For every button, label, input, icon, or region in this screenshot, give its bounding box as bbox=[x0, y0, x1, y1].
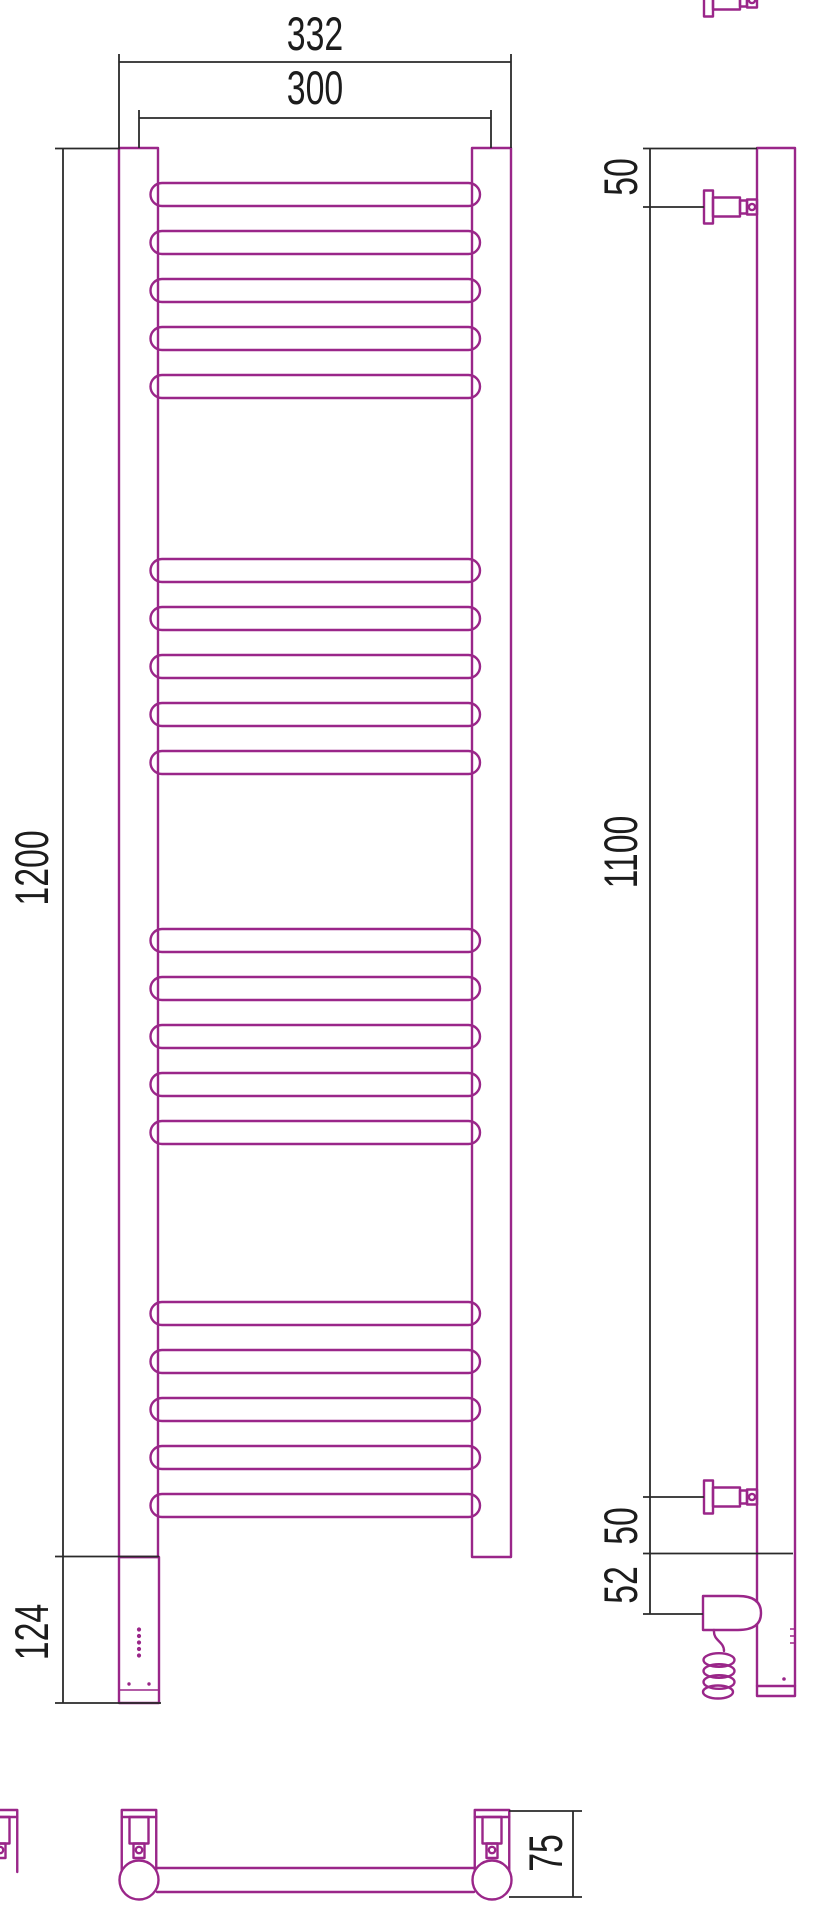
rung bbox=[151, 1025, 481, 1048]
technical-drawing-page: 332 300 1200 124 bbox=[0, 0, 819, 1920]
rung bbox=[151, 327, 481, 350]
rung bbox=[151, 751, 481, 774]
led-dot bbox=[137, 1653, 141, 1657]
led-dot bbox=[137, 1634, 141, 1638]
rung bbox=[151, 607, 481, 630]
rung bbox=[151, 655, 481, 678]
towel-rail-drawing: 332 300 1200 124 bbox=[0, 0, 819, 1920]
power-cable-coil bbox=[703, 1630, 735, 1699]
left-post bbox=[119, 148, 158, 1557]
screw-dot bbox=[147, 1682, 150, 1685]
led-dot bbox=[137, 1627, 141, 1631]
right-post bbox=[472, 148, 511, 1557]
wall-bracket-bottom bbox=[0, 1810, 17, 1872]
bottom-view: 75 bbox=[0, 1810, 582, 1900]
side-dimension-lines bbox=[643, 148, 793, 1614]
rung bbox=[151, 1398, 481, 1421]
right-post-section bbox=[473, 1861, 512, 1900]
led-dot bbox=[137, 1640, 141, 1644]
rung bbox=[151, 1446, 481, 1469]
side-view: 50 1100 50 52 bbox=[595, 0, 795, 1699]
top-wall-bracket bbox=[704, 191, 757, 224]
indicator-dots bbox=[127, 1627, 150, 1685]
bottom-wall-bracket bbox=[704, 1481, 757, 1514]
rung bbox=[151, 1494, 481, 1517]
dim-housing-height: 124 bbox=[6, 1604, 59, 1660]
bottom-rung-tube bbox=[157, 1868, 474, 1892]
rung bbox=[151, 559, 481, 582]
rung bbox=[151, 1302, 481, 1325]
front-view: 332 300 1200 124 bbox=[6, 8, 511, 1703]
dim-top-bracket-offset: 50 bbox=[595, 158, 648, 196]
dim-rail-height: 1200 bbox=[6, 830, 59, 905]
wall-bracket-side bbox=[704, 0, 757, 17]
dim-heater-offset: 52 bbox=[595, 1566, 648, 1604]
rung bbox=[151, 977, 481, 1000]
rung bbox=[151, 703, 481, 726]
rung bbox=[151, 1350, 481, 1373]
rung bbox=[151, 231, 481, 254]
led-dot bbox=[137, 1647, 141, 1651]
rung bbox=[151, 1073, 481, 1096]
electric-housing bbox=[119, 1557, 159, 1703]
side-tube bbox=[757, 148, 795, 1696]
heating-element bbox=[703, 1596, 761, 1630]
dim-bracket-span: 1100 bbox=[595, 816, 648, 889]
rung bbox=[151, 1121, 481, 1144]
rung bbox=[151, 183, 481, 206]
rung bbox=[151, 929, 481, 952]
dim-bottom-bracket-offset: 50 bbox=[595, 1507, 648, 1545]
dim-post-center-width: 300 bbox=[287, 62, 343, 115]
dim-overall-width: 332 bbox=[287, 8, 343, 61]
dim-wall-depth: 75 bbox=[520, 1834, 573, 1872]
rung bbox=[151, 375, 481, 398]
rung bbox=[151, 279, 481, 302]
rungs-group bbox=[151, 183, 481, 1517]
left-post-section bbox=[120, 1861, 159, 1900]
housing-dot bbox=[782, 1677, 786, 1681]
screw-dot bbox=[127, 1682, 130, 1685]
